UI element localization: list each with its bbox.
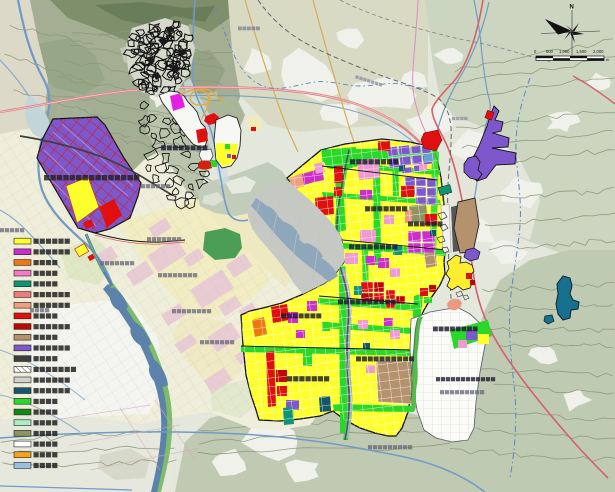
- svg-text:500: 500: [546, 49, 554, 54]
- svg-text:N: N: [570, 5, 574, 11]
- svg-text:1,000: 1,000: [559, 49, 570, 54]
- svg-text:1,500: 1,500: [576, 49, 587, 54]
- svg-text:2,000: 2,000: [593, 49, 604, 54]
